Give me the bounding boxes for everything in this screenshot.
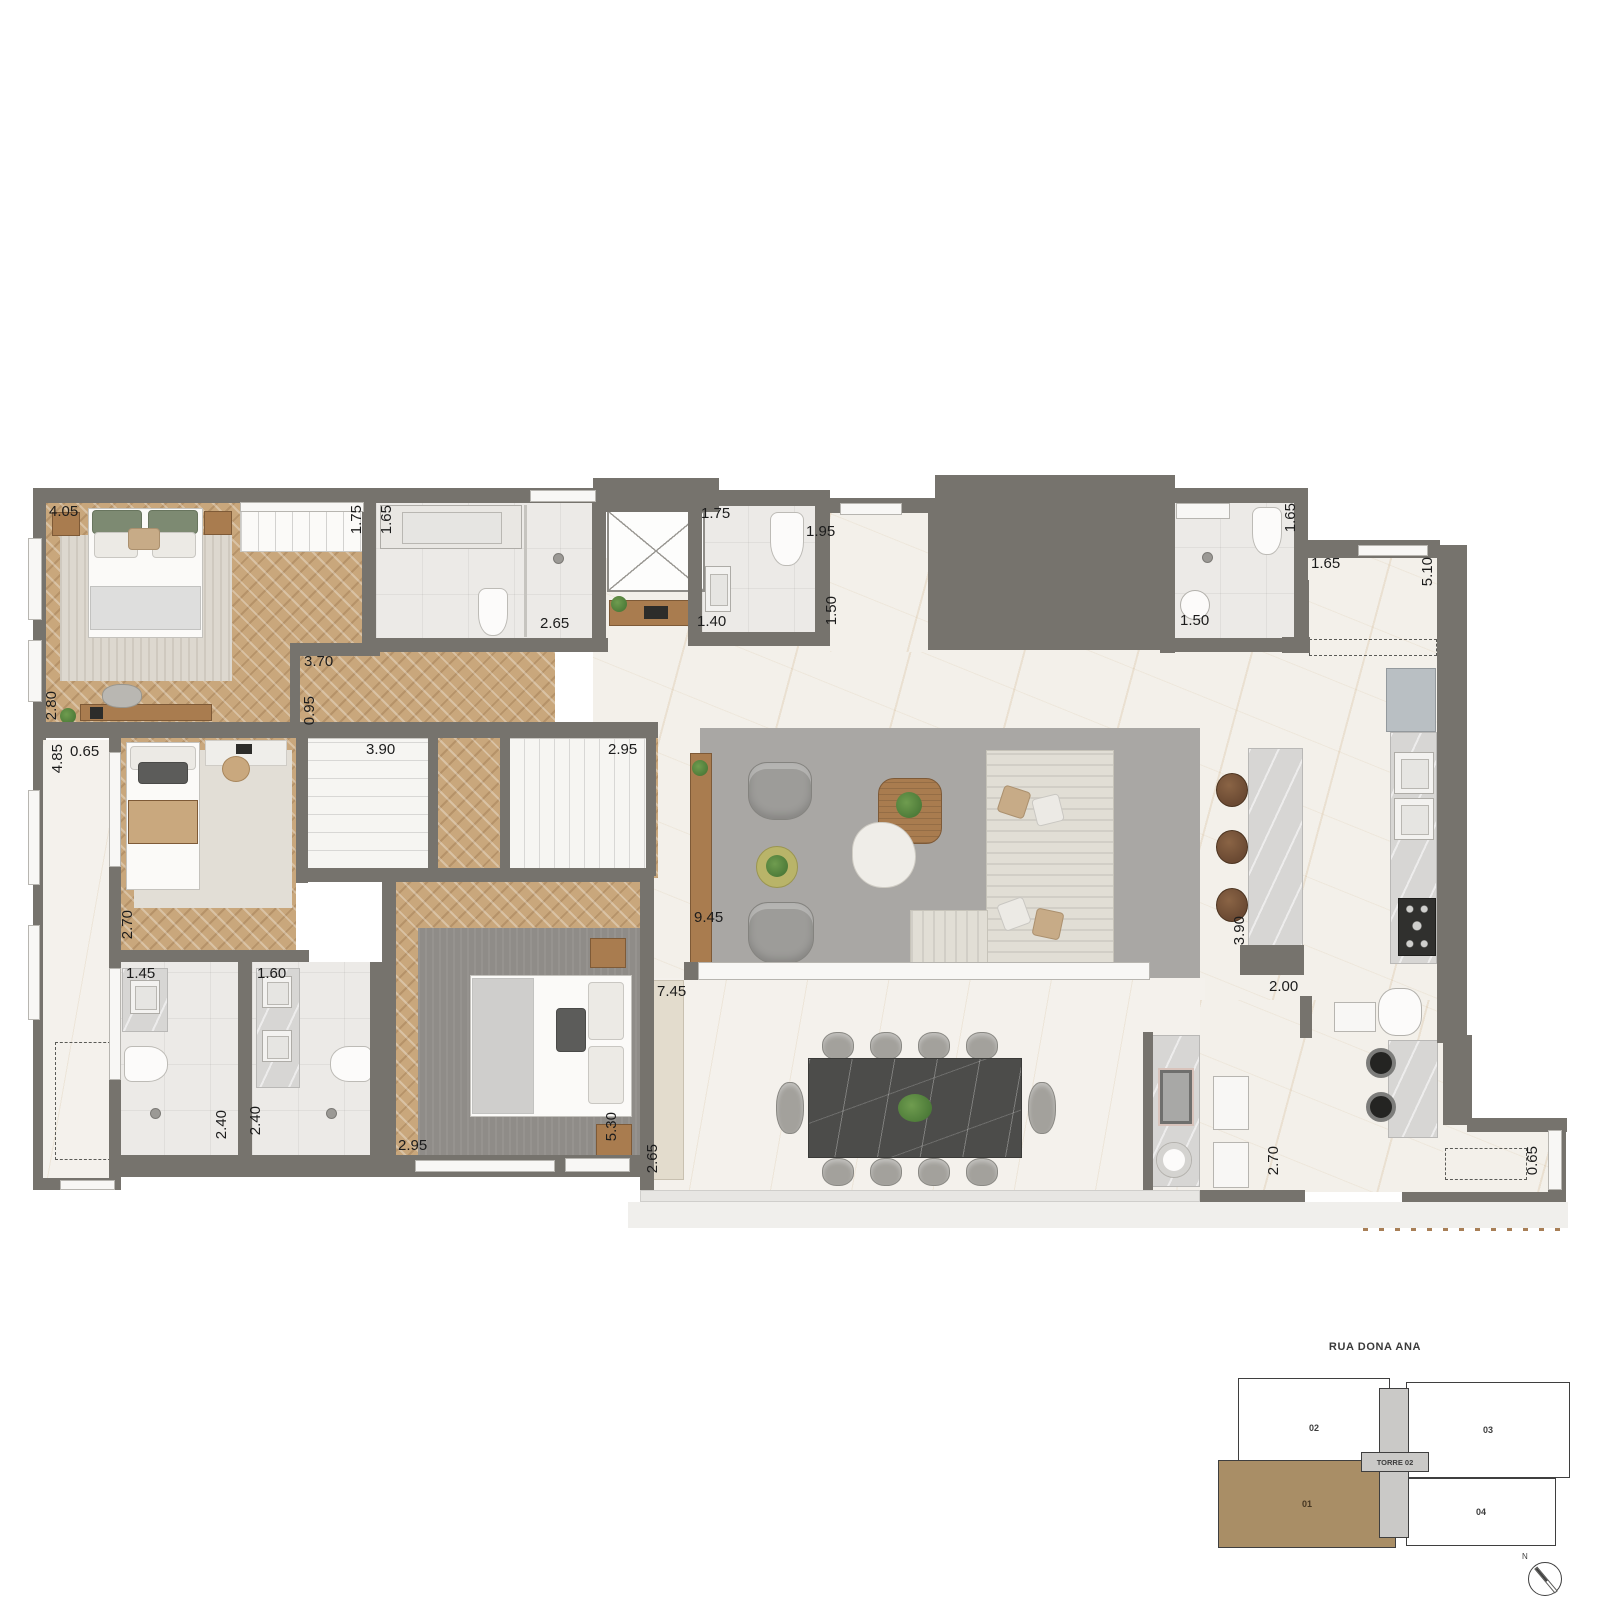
wall-segment (296, 735, 308, 883)
wall-segment (688, 632, 830, 646)
shower-head (150, 1108, 161, 1119)
wall-segment (1443, 1035, 1472, 1125)
north-label: N (1522, 1552, 1528, 1561)
wall-segment (500, 733, 510, 870)
window (28, 925, 40, 1020)
plant (611, 596, 627, 612)
wall-segment (642, 978, 654, 1194)
window (28, 790, 40, 885)
keyplan-unit-label: 02 (1309, 1423, 1319, 1433)
laundry-counter (1388, 1040, 1438, 1138)
keyplan-unit-label: 03 (1483, 1425, 1493, 1435)
wall-segment (296, 868, 646, 882)
dining-chair (966, 1032, 998, 1060)
wall-segment (1143, 1032, 1153, 1190)
sofa-pillow (1031, 907, 1064, 940)
tv-icon (644, 606, 668, 619)
dining-chair (918, 1158, 950, 1186)
dining-chair (1028, 1082, 1056, 1134)
plant (896, 792, 922, 818)
wall-segment (109, 950, 309, 962)
plant (692, 760, 708, 776)
grill (1158, 1068, 1194, 1126)
window (415, 1160, 555, 1172)
round-basin (1156, 1142, 1192, 1178)
master-blanket (90, 586, 201, 630)
plant (766, 855, 788, 877)
keyplan-tower-label: TORRE 02 (1361, 1452, 1429, 1472)
shower-head (1202, 552, 1213, 563)
keyplan-unit-01: 01 (1218, 1460, 1396, 1548)
bath2-sink (262, 976, 292, 1008)
desk-chair (102, 684, 142, 708)
window (240, 502, 364, 512)
wall-segment (928, 498, 942, 650)
fridge (1386, 668, 1436, 732)
wall-segment (684, 962, 698, 980)
kitchen-island (1248, 748, 1303, 948)
nightstand (204, 511, 232, 535)
wall-segment (1240, 945, 1304, 975)
dining-chair (776, 1082, 804, 1134)
wall-segment (428, 733, 438, 870)
service-dashed-area (1445, 1148, 1527, 1180)
service-door (1213, 1142, 1249, 1188)
shower-head (553, 553, 564, 564)
window (28, 538, 42, 620)
wall-segment (1300, 996, 1312, 1038)
wall-segment (290, 656, 300, 726)
wall-segment (815, 498, 830, 646)
wall-segment (362, 495, 376, 643)
bath1-sink (130, 980, 160, 1014)
coffee-table-white (852, 822, 916, 888)
bedroom2-pillow (138, 762, 188, 784)
terrace-ledge (628, 1202, 1568, 1228)
window (109, 752, 121, 867)
dining-chair (870, 1032, 902, 1060)
keyplan-unit-label: 04 (1476, 1507, 1486, 1517)
tv-icon (236, 744, 252, 754)
service-door (1213, 1076, 1249, 1130)
window (28, 640, 42, 702)
kitchen-dashed-area (1309, 639, 1437, 656)
lavabo-sink (705, 566, 731, 612)
laundry-sink (1378, 988, 1422, 1036)
window (840, 503, 902, 515)
wall-segment (1160, 488, 1308, 503)
dining-chair (870, 1158, 902, 1186)
keyplan-unit-03: 03 (1406, 1382, 1570, 1478)
dining-chair (822, 1158, 854, 1186)
washer (1366, 1048, 1396, 1078)
floor-corridor (290, 652, 555, 728)
keyplan-unit-label: 01 (1302, 1499, 1312, 1509)
master-wardrobe (240, 505, 365, 552)
terrace-sideboard (652, 980, 684, 1180)
wall-segment (1295, 580, 1309, 638)
dining-chair (966, 1158, 998, 1186)
bedroom2-closet (302, 738, 430, 870)
sofa (986, 750, 1114, 976)
wall-segment (592, 498, 606, 643)
bedroom3-pillow (588, 1046, 624, 1104)
wall-segment (33, 488, 608, 503)
wall-segment (33, 722, 658, 738)
wall-segment (935, 475, 1175, 650)
bedroom3-pillow (588, 982, 624, 1040)
armchair (748, 902, 814, 964)
dining-centerpiece (898, 1094, 932, 1122)
bath-niche (1176, 503, 1230, 519)
bar-stool (1216, 773, 1248, 807)
nightstand (596, 1124, 632, 1156)
bath2-sink (262, 1030, 292, 1062)
kitchen-sink (1394, 798, 1434, 840)
wall-segment (695, 490, 830, 506)
floor-plan-canvas: 4.051.751.652.653.700.952.804.850.653.90… (0, 0, 1600, 1600)
wall-segment (362, 638, 608, 652)
balcony-dashed-area (55, 1042, 111, 1160)
window (698, 962, 1150, 980)
service-door (1334, 1002, 1376, 1032)
wall-segment (688, 498, 702, 646)
tv-icon (90, 707, 103, 719)
toilet (770, 512, 804, 566)
shower-partition (524, 505, 527, 637)
window (565, 1158, 630, 1172)
toilet (124, 1046, 168, 1082)
wall-segment (646, 728, 656, 876)
toilet (330, 1046, 372, 1082)
floor-hall-1-95 (830, 512, 930, 652)
master-pillow (128, 528, 160, 550)
bedroom2-blanket (128, 800, 198, 844)
wall-segment (1437, 545, 1467, 1043)
wall-segment (382, 868, 396, 1168)
bedroom3-pillow (556, 1008, 586, 1052)
living-console (690, 753, 712, 977)
window (60, 1180, 115, 1190)
keyplan-tower-text: TORRE 02 (1377, 1458, 1414, 1467)
shower-head (326, 1108, 337, 1119)
vanity-sink (402, 512, 502, 543)
dining-chair (918, 1032, 950, 1060)
wall-segment (1282, 637, 1310, 653)
window (1548, 1130, 1562, 1190)
master-vanity (380, 505, 522, 549)
nightstand (590, 938, 626, 968)
wall-segment (1160, 495, 1175, 653)
window (530, 490, 596, 502)
keyplan-unit-04: 04 (1406, 1478, 1556, 1546)
round-sink (1180, 590, 1210, 620)
toilet (478, 588, 508, 636)
wall-segment (238, 962, 252, 1157)
dining-chair (822, 1032, 854, 1060)
dryer (1366, 1092, 1396, 1122)
kitchen-sink (1394, 752, 1434, 794)
window (109, 968, 121, 1080)
toilet (1252, 507, 1282, 555)
bedroom3-closet (508, 738, 648, 870)
window (1358, 545, 1428, 556)
bedroom3-blanket (472, 978, 534, 1114)
bar-stool (1216, 830, 1248, 864)
bar-stool (1216, 888, 1248, 922)
terrace-railing (640, 1190, 1200, 1202)
desk-chair (222, 756, 250, 782)
nightstand (52, 512, 80, 536)
keyplan-street-label: RUA DONA ANA (1260, 1341, 1490, 1353)
armchair (748, 762, 812, 820)
cooktop (1398, 898, 1436, 956)
